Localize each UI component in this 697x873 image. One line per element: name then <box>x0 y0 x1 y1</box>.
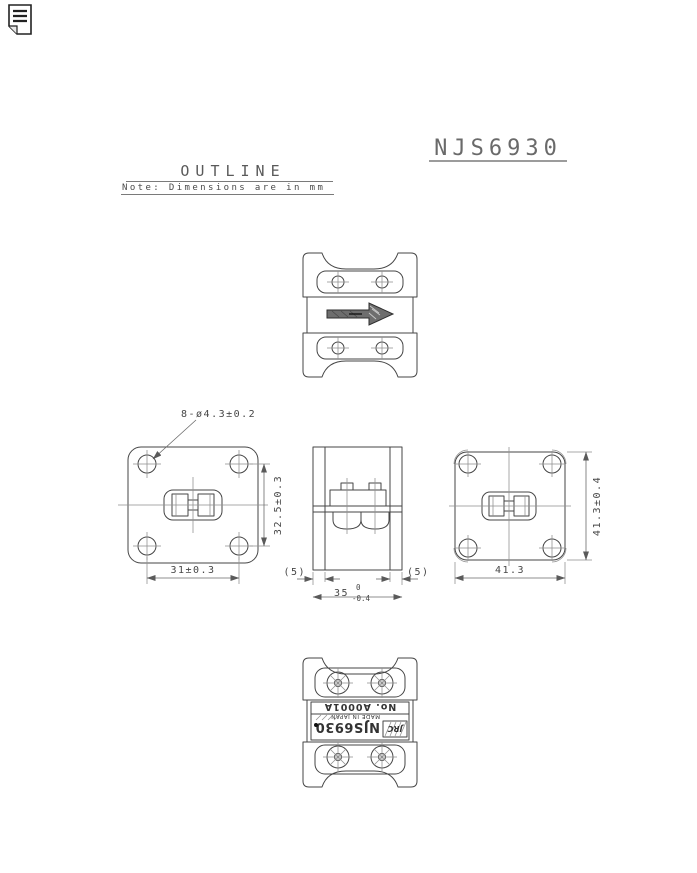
dim-rear-width: 41.3 <box>455 562 565 584</box>
nameplate-model: NJS6930 <box>315 719 380 734</box>
dim-body-length-text: 35 <box>334 588 349 599</box>
dim-body-length-tol-lower: -0.4 <box>352 594 371 603</box>
drawing-sheet: NJS6930 OUTLINE Note: Dimensions are in … <box>0 0 697 873</box>
top-view <box>303 253 417 377</box>
bottom-screw-holes-top <box>323 668 397 698</box>
side-view: (5) (5) 35 0 -0.4 <box>283 447 429 603</box>
dim-rear-width-text: 41.3 <box>495 565 525 576</box>
rear-view: 41.3±0.4 41.3 <box>449 447 603 584</box>
dim-body-length: 35 0 -0.4 <box>313 583 402 603</box>
dim-front-vertical-text: 32.5±0.3 <box>273 475 284 535</box>
dim-front-horizontal-text: 31±0.3 <box>170 565 215 576</box>
nameplate-serial: No. A0001A <box>324 701 397 712</box>
dim-flange-right: (5) <box>376 567 430 579</box>
dim-body-length-tol-upper: 0 <box>356 583 361 592</box>
dim-hole-callout: 8-ø4.3±0.2 <box>153 409 256 459</box>
tuning-screws <box>330 478 389 534</box>
dim-flange-right-text: (5) <box>407 567 430 578</box>
dim-holes-text: 8-ø4.3±0.2 <box>181 409 256 420</box>
dim-rear-height: 41.3±0.4 <box>567 452 603 560</box>
outline-drawing: 32.5±0.3 31±0.3 8-ø4.3±0.2 <box>0 0 697 873</box>
nameplate: JRC NJS6930 MADE IN JAPAN No. A0001A <box>311 701 409 740</box>
bottom-view: JRC NJS6930 MADE IN JAPAN No. A0001A <box>303 658 417 787</box>
flow-direction-arrow <box>327 303 393 325</box>
front-centerlines <box>118 477 268 533</box>
dim-front-horizontal: 31±0.3 <box>147 557 239 584</box>
brand-logo-box: JRC <box>383 721 407 737</box>
bottom-screw-holes-bottom <box>323 742 397 772</box>
dim-flange-left-text: (5) <box>283 567 306 578</box>
dim-flange-left: (5) <box>283 567 340 579</box>
dim-rear-height-text: 41.3±0.4 <box>592 476 603 536</box>
brand-logo-text: JRC <box>387 724 404 733</box>
index-dot <box>314 723 318 727</box>
front-view: 32.5±0.3 31±0.3 8-ø4.3±0.2 <box>118 409 284 584</box>
